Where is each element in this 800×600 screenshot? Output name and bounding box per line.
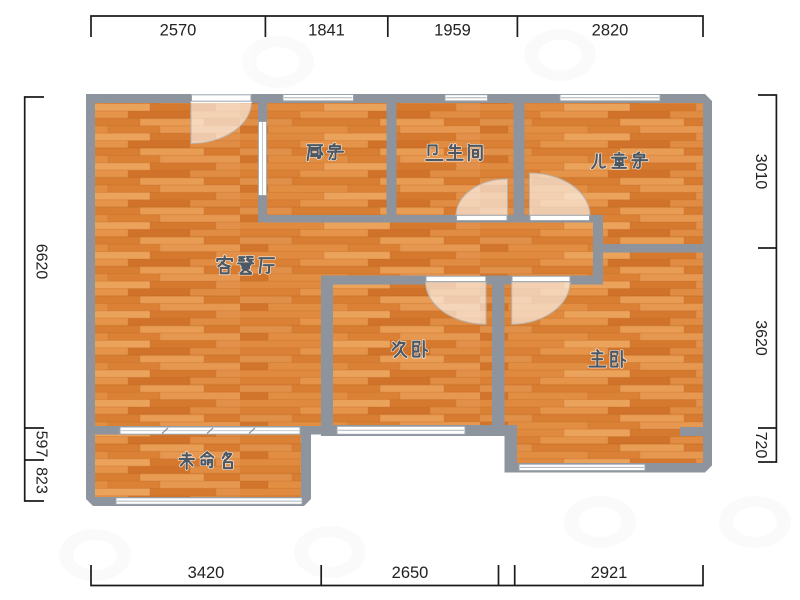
svg-text:597: 597	[33, 431, 50, 458]
svg-text:2921: 2921	[591, 564, 628, 582]
svg-text:1959: 1959	[434, 22, 471, 40]
svg-text:823: 823	[33, 467, 50, 494]
svg-text:6620: 6620	[33, 244, 50, 280]
svg-text:3620: 3620	[752, 320, 769, 356]
svg-text:2820: 2820	[592, 22, 629, 40]
svg-text:2570: 2570	[160, 22, 197, 40]
svg-text:3420: 3420	[188, 564, 225, 582]
svg-text:2650: 2650	[392, 564, 429, 582]
svg-text:720: 720	[752, 432, 769, 459]
svg-text:1841: 1841	[308, 22, 345, 40]
svg-text:3010: 3010	[752, 154, 769, 190]
